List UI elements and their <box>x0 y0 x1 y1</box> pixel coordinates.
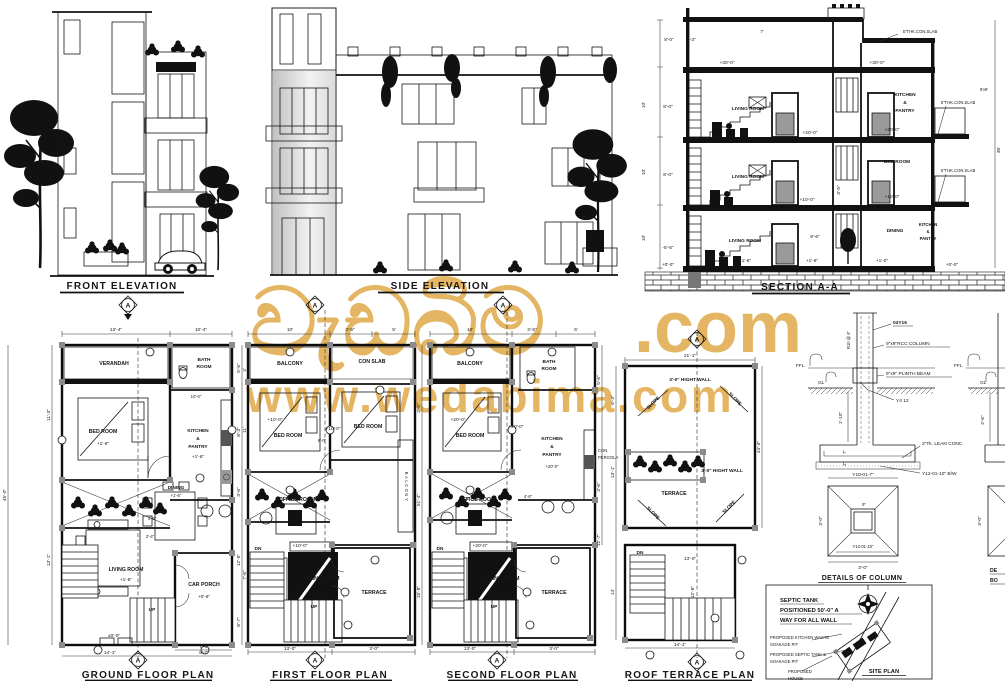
front-elevation-title: FRONT ELEVATION <box>67 281 178 292</box>
marker-letter: A <box>136 658 141 665</box>
room-label: KITCHEN <box>894 92 916 98</box>
dim-label: 3'-0" <box>858 565 868 571</box>
dim-label: 7'-6" <box>199 644 209 650</box>
watermark-tld: .com <box>634 288 802 368</box>
dim-label: 13'-1" <box>610 466 616 479</box>
dim-label: 9'x9' <box>980 87 989 92</box>
level-label: ±0'-0" <box>108 633 120 639</box>
stair-direction-label: UP <box>149 607 156 613</box>
site-label: SOAKAGE PIT <box>770 659 799 664</box>
room-label: LIVING ROOM <box>305 576 340 582</box>
marker-letter: A <box>313 303 318 310</box>
plan-title: SECOND FLOOR PLAN <box>447 670 578 681</box>
dim-label: 13'-0" <box>464 646 477 652</box>
dim-label: 4'-6" <box>148 516 157 521</box>
dim-label: 2" <box>842 462 847 466</box>
site-plan-title: SITE PLAN <box>869 669 899 675</box>
room-label: BED ROOM <box>354 424 383 430</box>
details-of-column-clipped: FFL GL 2'-6" 3'-0" DE BO <box>954 313 1005 584</box>
dim-label: 7" <box>842 450 847 454</box>
room-label: TERRACE <box>541 590 567 596</box>
room-label: DINING <box>168 485 185 491</box>
note-label: 3'-0" HIGHT WALL <box>701 468 743 474</box>
dim-label: 10'-0" <box>191 394 202 399</box>
room-label: BALCONY <box>277 361 303 367</box>
dim-label: 2'-4" <box>146 534 155 539</box>
plan-title: FIRST FLOOR PLAN <box>272 670 388 681</box>
stirrup-label: R10 @ 6" <box>846 330 851 349</box>
dim-label: 11'-3" <box>46 409 52 421</box>
room-label: BALCONY <box>457 361 483 367</box>
level-label: +20'-0" <box>508 424 523 430</box>
level-label: +1'-6" <box>739 258 752 264</box>
dim-label: 3'-5" <box>836 185 842 195</box>
note-label: 3'-0" HIGHT WALL <box>669 377 711 383</box>
dim-label: 2'-6" <box>980 415 986 425</box>
site-label: PROPOSED <box>788 669 812 674</box>
plan-title: ROOF TERRACE PLAN <box>625 670 755 681</box>
room-label: LIVING ROOM <box>109 567 144 573</box>
level-label: +20'-0" <box>450 417 465 423</box>
septic-note: SEPTIC TANK <box>780 598 819 604</box>
pergola-strip <box>625 449 706 483</box>
dim-label: 3'-0" <box>549 646 559 652</box>
room-label: PANTRY <box>542 452 562 458</box>
marker-letter: A <box>501 303 506 310</box>
dim-label: 10'-4" <box>195 327 208 333</box>
marker-letter: A <box>126 303 131 310</box>
dim-label: 10' <box>287 327 293 333</box>
room-label: LIVING ROOM <box>732 174 764 180</box>
stair-direction-label: DN <box>637 550 644 556</box>
room-label: BED ROOM <box>456 433 485 439</box>
dim-label: 8'-7" <box>199 650 209 656</box>
room-label: KITCHEN <box>919 222 938 227</box>
dim-label: 9" <box>862 502 866 507</box>
dim-label: 3'-0" <box>977 516 983 526</box>
room-label: KITCHEN <box>541 436 563 442</box>
dim-label: 45'-0" <box>2 489 8 502</box>
room-label: TERRACE <box>361 590 387 596</box>
stair-direction-label: UP <box>311 604 318 610</box>
stair-direction-label: UP <box>491 604 498 610</box>
level-label: +1'-6" <box>171 493 182 498</box>
level-label: +1'-6" <box>120 577 133 583</box>
dim-label: 8'-6" <box>810 234 820 240</box>
marker-letter: A <box>695 337 700 344</box>
site-label: SOAKAGE PIT <box>770 642 799 647</box>
dim-label: 15'-8" <box>416 586 422 599</box>
level-label: GL <box>818 380 825 386</box>
room-label: CON SLAB <box>358 359 385 365</box>
detail-title: DETAILS OF COLUMN <box>822 575 903 582</box>
room-label: & <box>926 229 929 234</box>
level-label: FFL <box>796 363 805 369</box>
room-label: TERRACE <box>661 491 687 497</box>
dim-label: 8'-0" <box>663 172 673 178</box>
dim-label: 12'-5" <box>236 554 242 567</box>
dim-label: 14' <box>610 589 616 595</box>
section-marker-a: A <box>119 296 137 320</box>
dim-label: 13'-1" <box>46 554 52 567</box>
dim-label: 4'-6" <box>524 494 533 499</box>
detail-title-fragment: DE <box>990 568 998 574</box>
dim-label: 5'-6" <box>236 363 242 373</box>
room-label: & <box>550 444 554 450</box>
dim-label: 2'-6" <box>416 403 422 413</box>
dim-label: 8'-0" <box>664 37 674 43</box>
room-label: PANTRY <box>895 108 915 114</box>
room-label: BALCONY <box>404 472 409 503</box>
room-label: CAR PORCH <box>188 582 220 588</box>
shaft-vents <box>836 78 858 248</box>
site-label: HOUSE <box>788 676 803 681</box>
dim-label: 3'-6" <box>236 487 242 497</box>
dim-label: 13'-0" <box>684 556 697 562</box>
dim-label: 21'-1" <box>684 353 697 359</box>
level-label: +1'-6" <box>192 454 205 460</box>
dim-label: 8'-7" <box>236 617 242 627</box>
vine-plants <box>381 54 617 107</box>
note-label: PERGOLA <box>598 455 618 460</box>
stair-direction-label: DN <box>255 546 262 552</box>
room-label: & <box>196 436 200 442</box>
level-label: +10'-0" <box>884 194 899 200</box>
car-silhouette <box>155 251 205 274</box>
room-label: PANTRY <box>188 444 208 450</box>
detail-title-fragment: BO <box>990 578 998 584</box>
level-label: +10'-0" <box>799 197 814 203</box>
slab-note: 5"THK.CON.SLAB <box>941 100 976 105</box>
column-plan-view: 9" 3'-0" Y12-01-10" 3'-0" <box>818 486 898 571</box>
site-plan: SEPTIC TANK POSITIONED 50'-0" A WAY FOR … <box>766 585 932 681</box>
stairs-icon <box>630 555 735 640</box>
room-label: PANTRY <box>920 236 937 241</box>
dim-label: 8'-3" <box>236 427 242 437</box>
dim-label: 9'-3" <box>686 37 696 43</box>
marker-letter: A <box>313 658 318 665</box>
plan-title: GROUND FLOOR PLAN <box>82 670 215 681</box>
dim-label: 14'-1" <box>674 642 687 648</box>
dim-label: 1'-10" <box>838 412 844 425</box>
level-label: +20'-0" <box>545 464 559 469</box>
rebar-label: Y4 12 <box>896 398 909 404</box>
dim-label: 12'-7" <box>596 534 602 547</box>
room-label: OFFICE ROOM <box>279 497 316 503</box>
rebar-label: 04Y16 <box>893 320 907 326</box>
dim-label: 7' <box>760 29 764 35</box>
side-elevation: SIDE ELEVATION <box>266 8 627 293</box>
dim-label: 6'-0" <box>318 438 327 443</box>
dim-label: 7'-6" <box>242 570 248 580</box>
dim-label: 51'-4" <box>416 494 422 507</box>
room-label: BED ROOM <box>274 433 303 439</box>
beam-label: 9"x9" PLINTH BEAM <box>886 371 930 377</box>
room-label: KITCHEN <box>187 428 209 434</box>
level-label: +0'-0" <box>946 262 959 268</box>
rebar-label: Y12-01-10" <box>852 544 874 549</box>
kitchen-counter <box>221 400 232 496</box>
septic-note: WAY FOR ALL WALL <box>780 618 837 624</box>
room-label: DINING <box>887 228 904 234</box>
dim-label: 13'-4" <box>110 327 123 333</box>
room-label: LIVING ROOM <box>729 238 761 244</box>
tree-silhouette <box>196 166 239 270</box>
dim-label: 3'-0" <box>818 516 824 526</box>
room-label: ROOM <box>197 364 212 370</box>
dim-label: 10' <box>641 102 647 108</box>
room-label: LIVING ROOM <box>485 576 520 582</box>
stair-direction-label: DN <box>437 546 444 552</box>
rebar-label: Y10-01-7" <box>852 472 874 478</box>
room-label: BATH <box>543 359 557 365</box>
level-label: FFL <box>954 363 963 369</box>
dim-label: 11' <box>242 427 248 433</box>
level-label: +20'-0" <box>802 130 817 136</box>
dim-label: 24'-3" <box>756 441 762 454</box>
dim-label: 13'-0" <box>284 646 297 652</box>
side-elevation-title: SIDE ELEVATION <box>391 281 490 292</box>
dim-label: 4' <box>242 368 248 372</box>
section-marker-a: A <box>688 653 706 671</box>
section-title: SECTION A-A <box>761 282 839 293</box>
level-label: +0'-0" <box>662 262 675 268</box>
site-label: PROPOSED KITCHEN WASTE <box>770 635 829 640</box>
level-label: +1'-6" <box>97 441 110 447</box>
section-marker-a: A <box>129 651 147 669</box>
column-label: 9"x9"RCC COLUMN <box>886 341 930 347</box>
drawing-sheet: වැඩබිම .com www.wedabima.com FRONT ELEVA… <box>0 0 1005 681</box>
dim-label: 10' <box>467 327 473 333</box>
site-label: PROPOSED SEPTIC TANK & <box>770 652 826 657</box>
note-label: CON. <box>598 448 608 453</box>
dim-label: 10' <box>641 235 647 241</box>
septic-note: POSITIONED 50'-0" A <box>780 608 839 614</box>
room-label: ROOM <box>542 366 557 372</box>
level-label: +20'-0" <box>472 543 487 549</box>
level-label: +30'-0" <box>719 60 734 66</box>
level-label: +10'-0" <box>325 426 340 432</box>
level-label: +10'-0" <box>267 417 282 423</box>
level-label: +30'-0" <box>869 60 884 66</box>
level-label: +0'-6" <box>198 594 211 600</box>
tree-silhouette <box>4 100 74 268</box>
rebar-label: Y12-01-10" B/W <box>922 471 957 477</box>
stairs-icon <box>62 545 175 642</box>
room-label: LIVING ROOM <box>732 106 764 112</box>
front-elevation: FRONT ELEVATION A <box>4 12 239 320</box>
details-of-column: 04Y16 9"x9"RCC COLUMN FFL 9"x9" PLINTH B… <box>796 313 1005 584</box>
dim-label: 35' <box>996 147 1002 153</box>
dim-label: 10' <box>641 169 647 175</box>
kitchen-counter <box>584 430 595 500</box>
dim-label: 5' <box>392 327 396 333</box>
dim-label: 14'-1" <box>104 650 117 656</box>
level-label: +10'-0" <box>292 543 307 549</box>
level-label: -5'-6" <box>662 245 673 251</box>
dim-label: 6'-3" <box>610 395 616 405</box>
dim-label: 5' <box>574 327 578 333</box>
level-label: +1'-6" <box>806 258 819 264</box>
level-label: +1'-0" <box>876 258 889 264</box>
level-label: +20'-0" <box>884 127 899 133</box>
marker-letter: A <box>495 658 500 665</box>
slab-note: 5"THK.CON.SLAB <box>941 168 976 173</box>
dim-label: 5'-6" <box>596 375 602 385</box>
dim-label: 12'-6" <box>690 586 696 599</box>
room-label: OFFICE ROOM <box>459 497 496 503</box>
room-label: BED ROOM <box>89 429 118 435</box>
section-a-a: LIVING ROOM LIVING ROOM LIVING ROOM KITC… <box>641 4 1005 294</box>
dim-label: 3'-5" <box>527 327 537 333</box>
note-label: 2"Tk. LEAN CONC. <box>922 441 964 447</box>
dim-label: 3'-0" <box>369 646 379 652</box>
level-label: GL <box>980 380 987 386</box>
marker-letter: A <box>695 660 700 667</box>
ground-floor-plan: VERANDAH BATH ROOM BED ROOM +1'-6" KITCH… <box>2 327 242 681</box>
room-label: VERANDAH <box>99 361 129 367</box>
room-label: & <box>903 100 907 106</box>
dim-label: 3'-6" <box>596 482 602 492</box>
slab-note: 5"THK.CON.SLAB <box>903 29 938 34</box>
section-marker-a: A <box>488 651 506 669</box>
dim-label: 8'-0" <box>663 104 673 110</box>
section-marker-a: A <box>306 651 324 669</box>
room-label: BED ROOM <box>884 159 910 165</box>
slope-label: SLOPE <box>721 499 737 515</box>
room-label: BATH <box>198 357 212 363</box>
dim-label: 3'-5" <box>345 327 355 333</box>
